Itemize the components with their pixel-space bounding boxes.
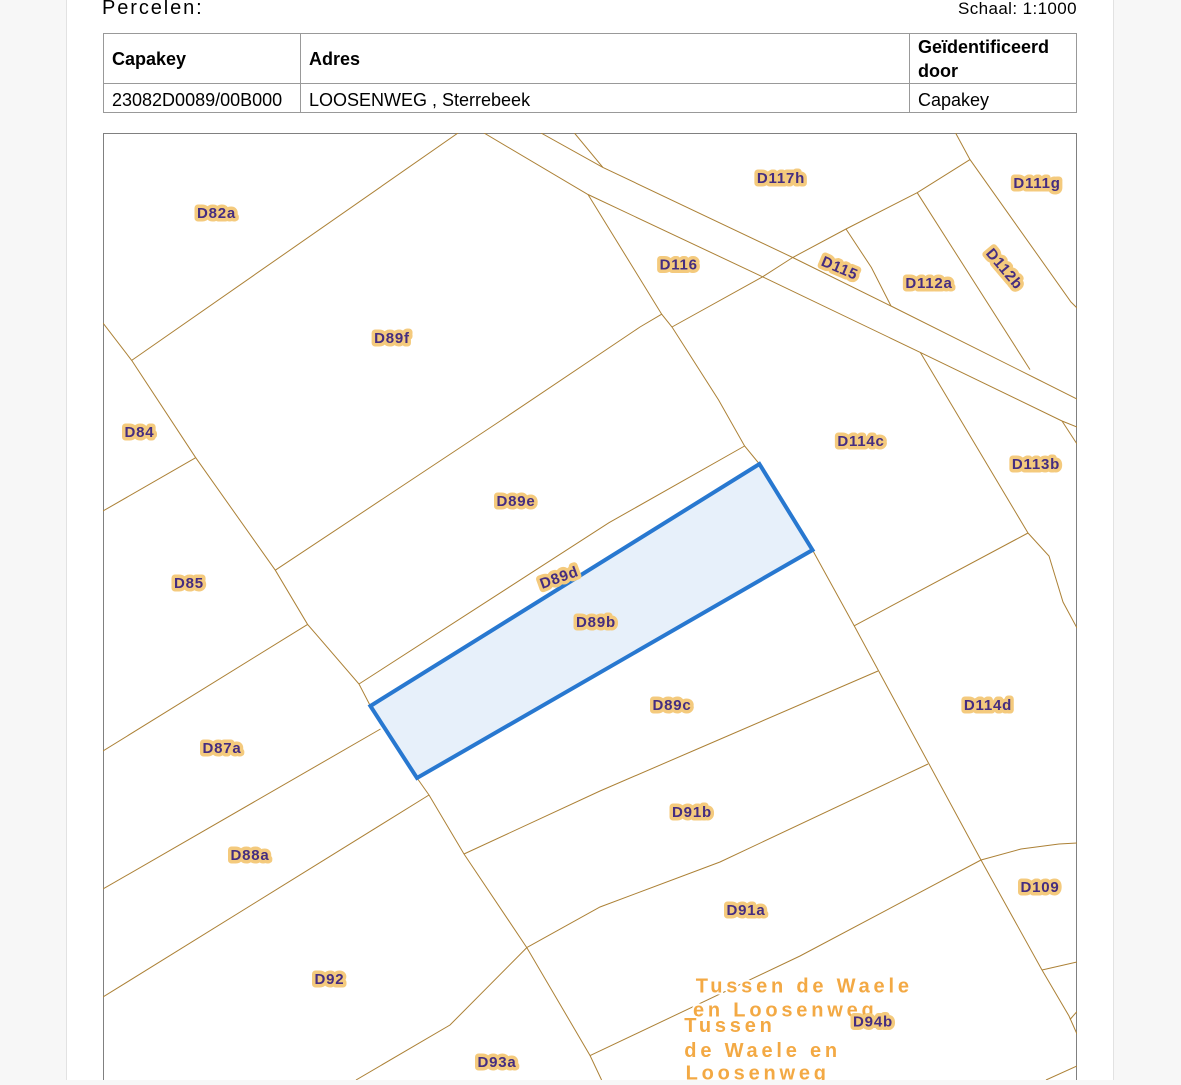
svg-text:D87a: D87a [202,740,241,757]
svg-text:D113b: D113b [1012,456,1060,473]
svg-text:D111g: D111g [1013,175,1060,192]
svg-text:D112a: D112a [905,275,952,292]
svg-text:D82a: D82a [197,205,236,222]
svg-text:D109: D109 [1020,879,1059,896]
svg-text:D88a: D88a [230,847,269,864]
svg-text:D91a: D91a [726,902,765,919]
svg-text:D89b: D89b [576,614,616,631]
svg-text:D92: D92 [315,971,345,988]
svg-text:Tussen de Waele: Tussen de Waele [696,976,913,998]
svg-text:de Waele en: de Waele en [684,1040,841,1062]
svg-text:Loosenweg: Loosenweg [686,1063,830,1081]
svg-text:Tussen: Tussen [684,1015,775,1037]
svg-text:D85: D85 [174,575,204,592]
svg-text:D91b: D91b [672,804,712,821]
svg-text:D84: D84 [125,424,155,441]
svg-text:D89c: D89c [652,697,691,714]
svg-text:D117h: D117h [757,170,805,187]
svg-text:D114c: D114c [837,433,884,450]
svg-text:D116: D116 [660,257,698,274]
svg-text:D89f: D89f [374,330,410,347]
svg-text:D94b: D94b [853,1014,893,1031]
svg-text:D114d: D114d [964,697,1012,714]
svg-text:D93a: D93a [477,1054,516,1071]
svg-text:D89e: D89e [496,493,535,510]
